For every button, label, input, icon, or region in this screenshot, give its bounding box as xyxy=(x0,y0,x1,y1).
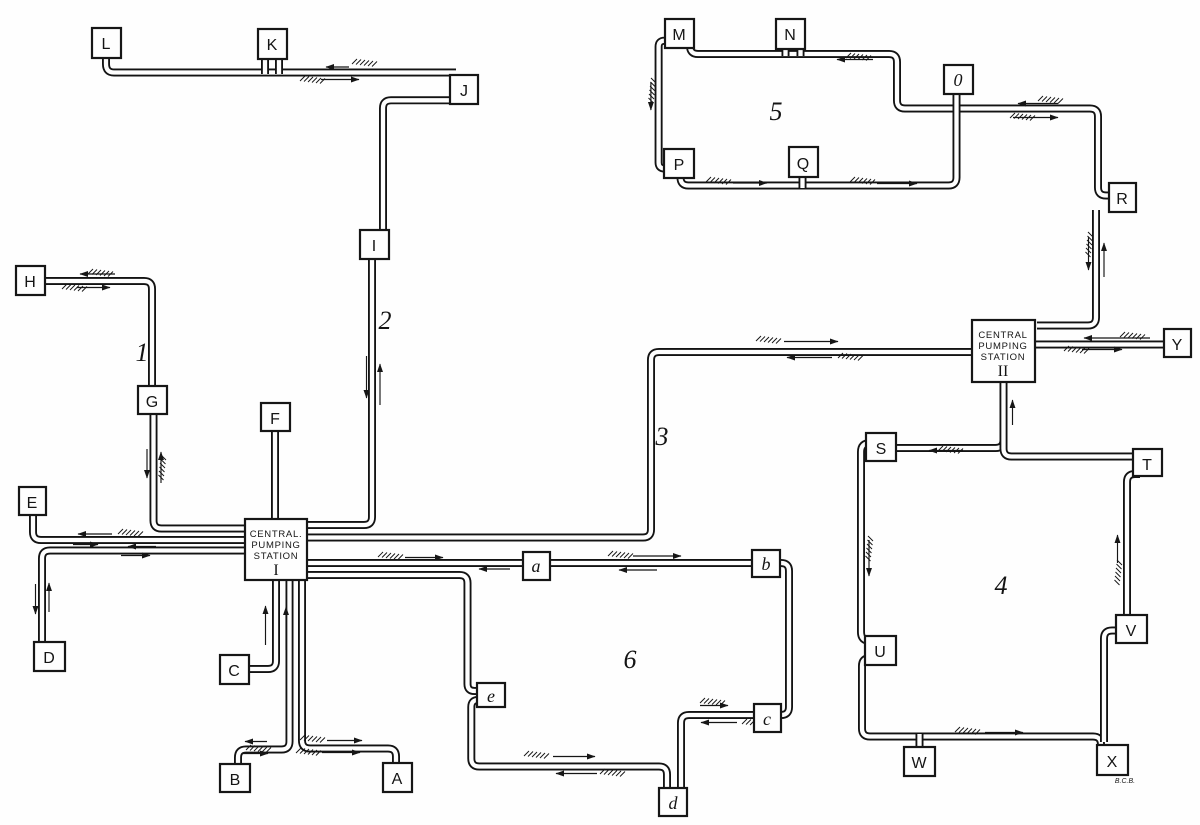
svg-text:C: C xyxy=(228,663,240,680)
svg-text:B.C.B.: B.C.B. xyxy=(1115,778,1135,785)
svg-text:2: 2 xyxy=(379,306,392,335)
svg-text:STATION: STATION xyxy=(981,352,1026,363)
svg-text:PUMPING: PUMPING xyxy=(978,341,1027,352)
svg-text:b: b xyxy=(762,554,771,574)
svg-text:G: G xyxy=(146,394,158,411)
svg-text:W: W xyxy=(911,755,927,772)
svg-text:J: J xyxy=(460,83,468,100)
svg-text:3: 3 xyxy=(655,422,669,451)
svg-text:6: 6 xyxy=(624,645,637,674)
svg-text:4: 4 xyxy=(995,571,1008,600)
svg-text:X: X xyxy=(1107,754,1118,771)
svg-text:R: R xyxy=(1116,191,1128,208)
svg-text:CENTRAL: CENTRAL xyxy=(978,330,1027,341)
svg-text:E: E xyxy=(27,495,38,512)
svg-text:M: M xyxy=(672,27,685,44)
svg-text:e: e xyxy=(487,686,495,706)
svg-text:II: II xyxy=(998,363,1009,380)
svg-text:H: H xyxy=(24,274,36,291)
svg-text:Q: Q xyxy=(797,156,809,173)
svg-text:Y: Y xyxy=(1172,337,1183,354)
svg-text:P: P xyxy=(674,157,685,174)
svg-text:D: D xyxy=(43,650,55,667)
svg-text:d: d xyxy=(669,793,679,813)
svg-text:S: S xyxy=(876,441,887,458)
svg-text:5: 5 xyxy=(770,97,783,126)
svg-text:I: I xyxy=(273,562,278,579)
svg-text:V: V xyxy=(1126,623,1137,640)
svg-text:K: K xyxy=(267,37,278,54)
svg-text:1: 1 xyxy=(136,338,149,367)
svg-text:CENTRAL.: CENTRAL. xyxy=(250,529,303,540)
svg-text:c: c xyxy=(763,709,771,729)
svg-text:B: B xyxy=(230,772,241,789)
svg-text:a: a xyxy=(532,556,541,576)
svg-text:U: U xyxy=(874,644,886,661)
svg-text:L: L xyxy=(102,36,111,53)
svg-text:STATION: STATION xyxy=(254,551,299,562)
svg-text:A: A xyxy=(392,771,403,788)
svg-text:T: T xyxy=(1142,457,1152,474)
svg-text:F: F xyxy=(270,411,280,428)
svg-text:N: N xyxy=(784,27,796,44)
svg-text:I: I xyxy=(372,238,376,255)
svg-text:0: 0 xyxy=(954,70,963,90)
svg-text:PUMPING: PUMPING xyxy=(251,540,300,551)
